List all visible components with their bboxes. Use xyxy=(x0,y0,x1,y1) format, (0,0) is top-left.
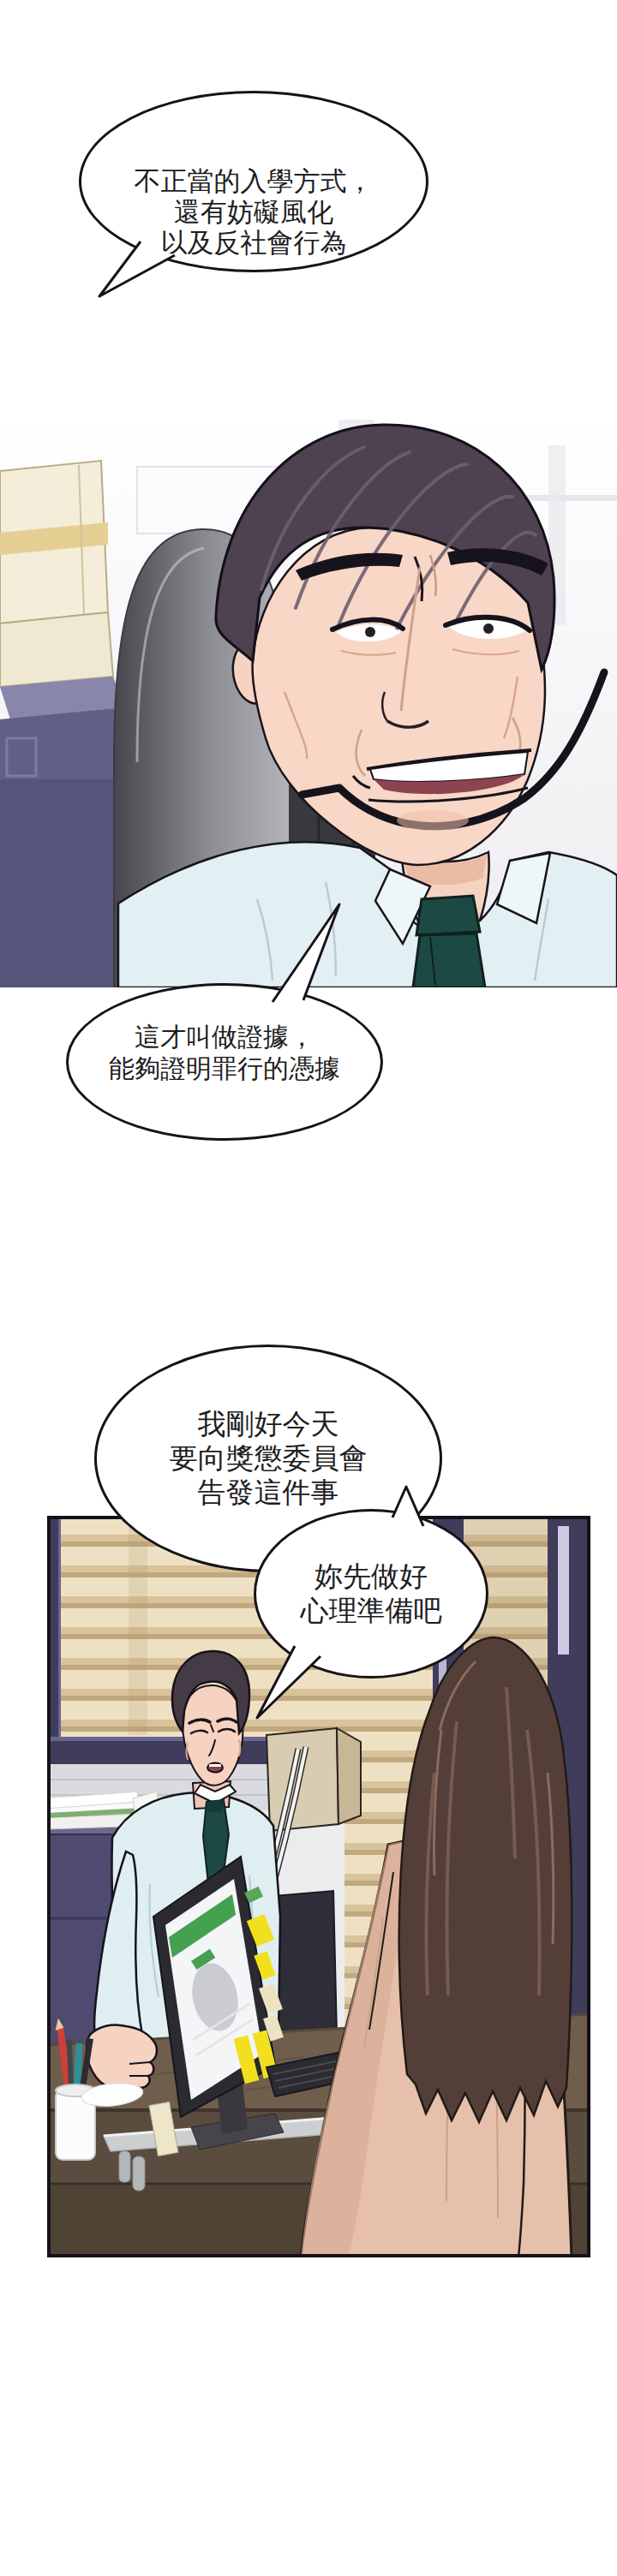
bubble-2-tail xyxy=(266,897,348,1009)
bubble-1-tail xyxy=(90,233,184,305)
speech-line: 不正當的入學方式， xyxy=(135,165,374,196)
comic-page: 不正當的入學方式， 還有妨礙風化 以及反社會行為 這才叫做證據， 能夠證明罪行的… xyxy=(0,0,617,2576)
hand-on-desk xyxy=(87,2024,157,2088)
speech-line: 我剛好今天 xyxy=(198,1407,339,1441)
speech-line: 要向獎懲委員會 xyxy=(170,1441,368,1476)
man-tie xyxy=(413,896,485,987)
speech-line: 能夠證明罪行的憑據 xyxy=(109,1052,340,1084)
speech-line: 心理準備吧 xyxy=(301,1594,442,1628)
filing-cabinet-blue xyxy=(0,677,124,987)
speech-line: 以及反社會行為 xyxy=(161,227,347,258)
cardboard-boxes xyxy=(0,461,113,687)
man-dark-suit xyxy=(273,1891,337,2038)
speech-line: 告發這件事 xyxy=(198,1476,339,1510)
bubble-4-top-tail xyxy=(386,1480,434,1533)
speech-line: 這才叫做證據， xyxy=(135,1021,314,1052)
beige-partition-box xyxy=(267,1728,361,1831)
man-shirt xyxy=(118,842,617,987)
speech-line: 還有妨礙風化 xyxy=(174,196,333,227)
speech-line: 妳先做好 xyxy=(314,1559,428,1594)
bubble-4-bottom-tail xyxy=(250,1641,329,1725)
